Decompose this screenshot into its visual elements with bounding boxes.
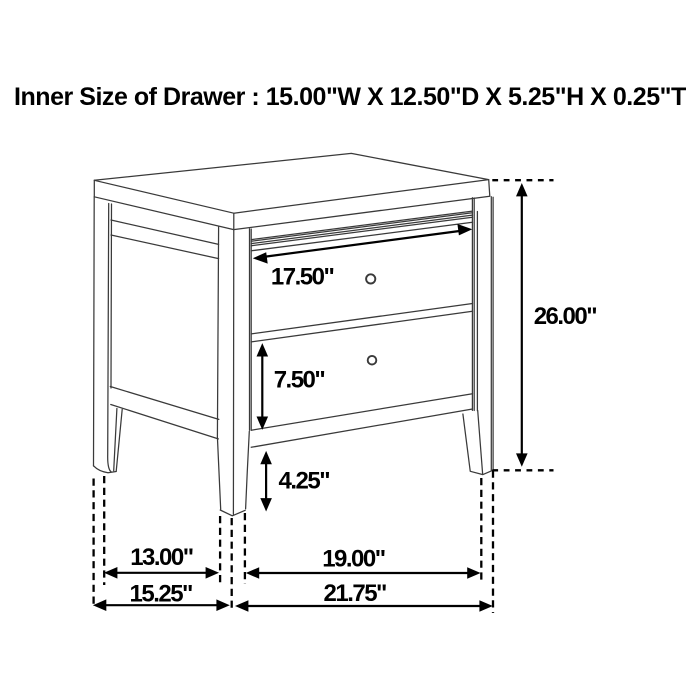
svg-text:17.50": 17.50" [271,264,334,291]
svg-text:7.50": 7.50" [274,366,325,393]
svg-text:26.00": 26.00" [534,303,597,330]
svg-text:15.25": 15.25" [130,581,193,608]
svg-text:21.75": 21.75" [324,580,387,607]
svg-text:Inner Size of Drawer : 15.00"W: Inner Size of Drawer : 15.00"W X 12.50"D… [14,83,686,111]
svg-text:19.00": 19.00" [322,545,385,572]
svg-text:13.00": 13.00" [130,544,193,571]
svg-text:4.25": 4.25" [279,468,330,495]
